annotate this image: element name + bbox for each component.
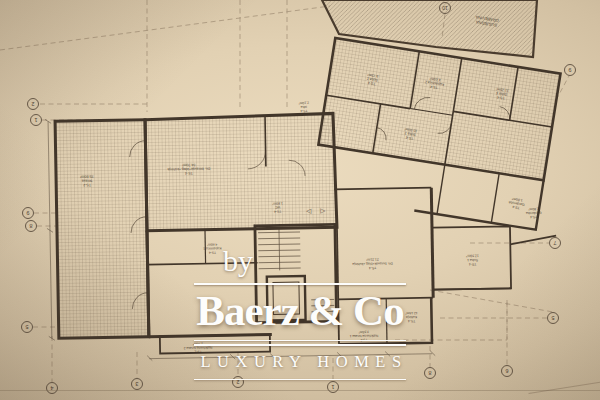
wardrobe-label: TS-4 Garderoba 1.80m² <box>526 207 542 219</box>
watermark-rule-top <box>194 283 406 285</box>
svg-text:5: 5 <box>551 315 554 321</box>
svg-text:7: 7 <box>553 240 556 246</box>
svg-text:8: 8 <box>428 370 431 376</box>
watermark-tagline: LUXURY HOMES <box>194 352 406 372</box>
paper-edge-line <box>0 390 600 391</box>
watermark-rule-mid2 <box>194 344 406 345</box>
watermark-brand: Baerz & Co <box>194 288 406 333</box>
kitchen-label: TS-4 Kuhinja 12.16m² <box>404 311 417 323</box>
svg-text:5: 5 <box>25 324 28 330</box>
svg-text:1.80m²: 1.80m² <box>271 201 282 205</box>
bedroom1-label: TS-4 Soba 1 12.59m² <box>465 254 479 267</box>
terrace: TS-2 Terasa 35.60m² <box>55 120 149 339</box>
soba1-walls <box>432 226 557 290</box>
svg-text:35.60m²: 35.60m² <box>80 174 94 178</box>
svg-text:1: 1 <box>34 117 37 123</box>
svg-text:9: 9 <box>568 67 571 73</box>
svg-text:10: 10 <box>442 5 448 11</box>
svg-text:2.10m²: 2.10m² <box>298 101 309 105</box>
svg-text:2: 2 <box>31 101 34 107</box>
svg-text:▷: ▷ <box>306 209 311 216</box>
svg-text:34.70m²: 34.70m² <box>181 163 195 167</box>
svg-text:1.80m²: 1.80m² <box>528 207 539 211</box>
watermark-by: by <box>132 246 344 276</box>
watermark-rule-bottom <box>194 379 406 381</box>
svg-text:◁: ◁ <box>320 208 325 215</box>
svg-text:9: 9 <box>26 210 29 216</box>
watermark: by Baerz & Co LUXURY HOMES <box>194 246 406 380</box>
svg-text:12.59m²: 12.59m² <box>465 254 478 258</box>
svg-text:6: 6 <box>505 368 508 374</box>
scanned-floorplan-photo: SUSJEDNA GRAĐEVINA <box>0 0 600 400</box>
watermark-rule-mid1 <box>194 340 406 342</box>
svg-text:8: 8 <box>29 223 32 229</box>
svg-text:12.16m²: 12.16m² <box>404 311 417 315</box>
upper-wing: TS-4 Soba 2 9.73m² TS-4 Kupaonica 2 4.65… <box>311 38 561 230</box>
svg-text:3: 3 <box>135 381 138 387</box>
svg-text:1.80m²: 1.80m² <box>511 197 523 203</box>
